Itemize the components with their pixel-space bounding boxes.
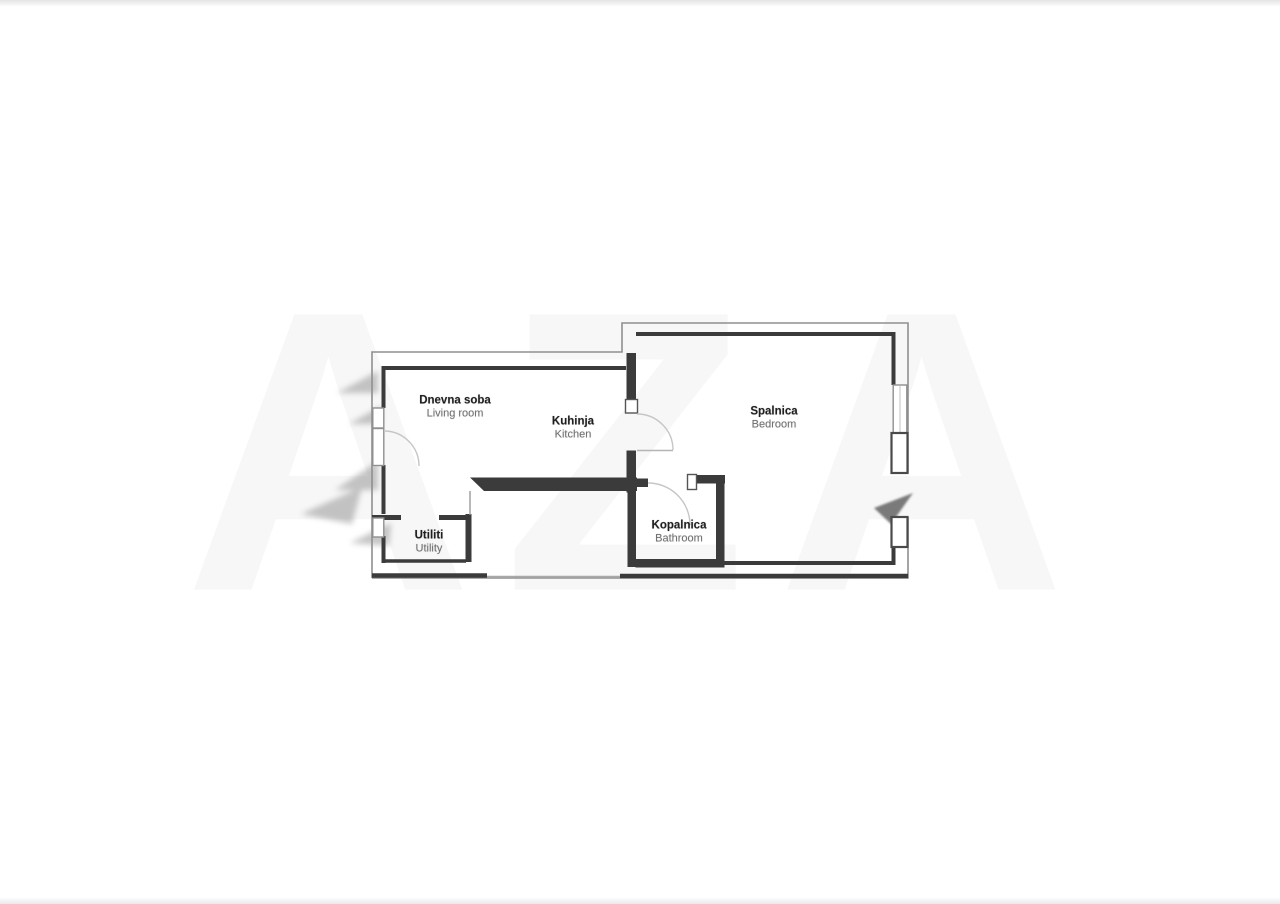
room-label-kitchen: Kuhinja Kitchen — [552, 414, 594, 441]
room-label-bathroom: Kopalnica Bathroom — [652, 518, 707, 545]
floorplan-page: { "page": { "background": "#ffffff", "to… — [0, 0, 1280, 904]
balcony-door-arc — [384, 431, 419, 466]
room-label-living-room: Dnevna soba Living room — [419, 393, 491, 420]
entrance-jamb-walls — [892, 433, 908, 547]
door-jambs — [626, 400, 697, 490]
floorplan-svg — [0, 0, 1280, 904]
room-name-sl: Dnevna soba — [419, 393, 491, 407]
room-label-bedroom: Spalnica Bedroom — [750, 404, 797, 431]
kitchen-bedroom-door-arc — [637, 414, 673, 450]
room-name-sl: Kopalnica — [652, 518, 707, 532]
room-label-utility: Utiliti Utility — [415, 528, 444, 555]
room-name-en: Kitchen — [552, 428, 594, 441]
room-name-sl: Kuhinja — [552, 414, 594, 428]
room-name-sl: Spalnica — [750, 404, 797, 418]
room-name-en: Bathroom — [652, 532, 707, 545]
floorplan-stage: AZA — [0, 0, 1280, 904]
room-name-en: Living room — [419, 407, 491, 420]
door-arcs — [384, 414, 690, 525]
room-name-sl: Utiliti — [415, 528, 444, 542]
room-name-en: Utility — [415, 542, 444, 555]
room-name-en: Bedroom — [750, 418, 797, 431]
inner-walls — [372, 332, 908, 576]
